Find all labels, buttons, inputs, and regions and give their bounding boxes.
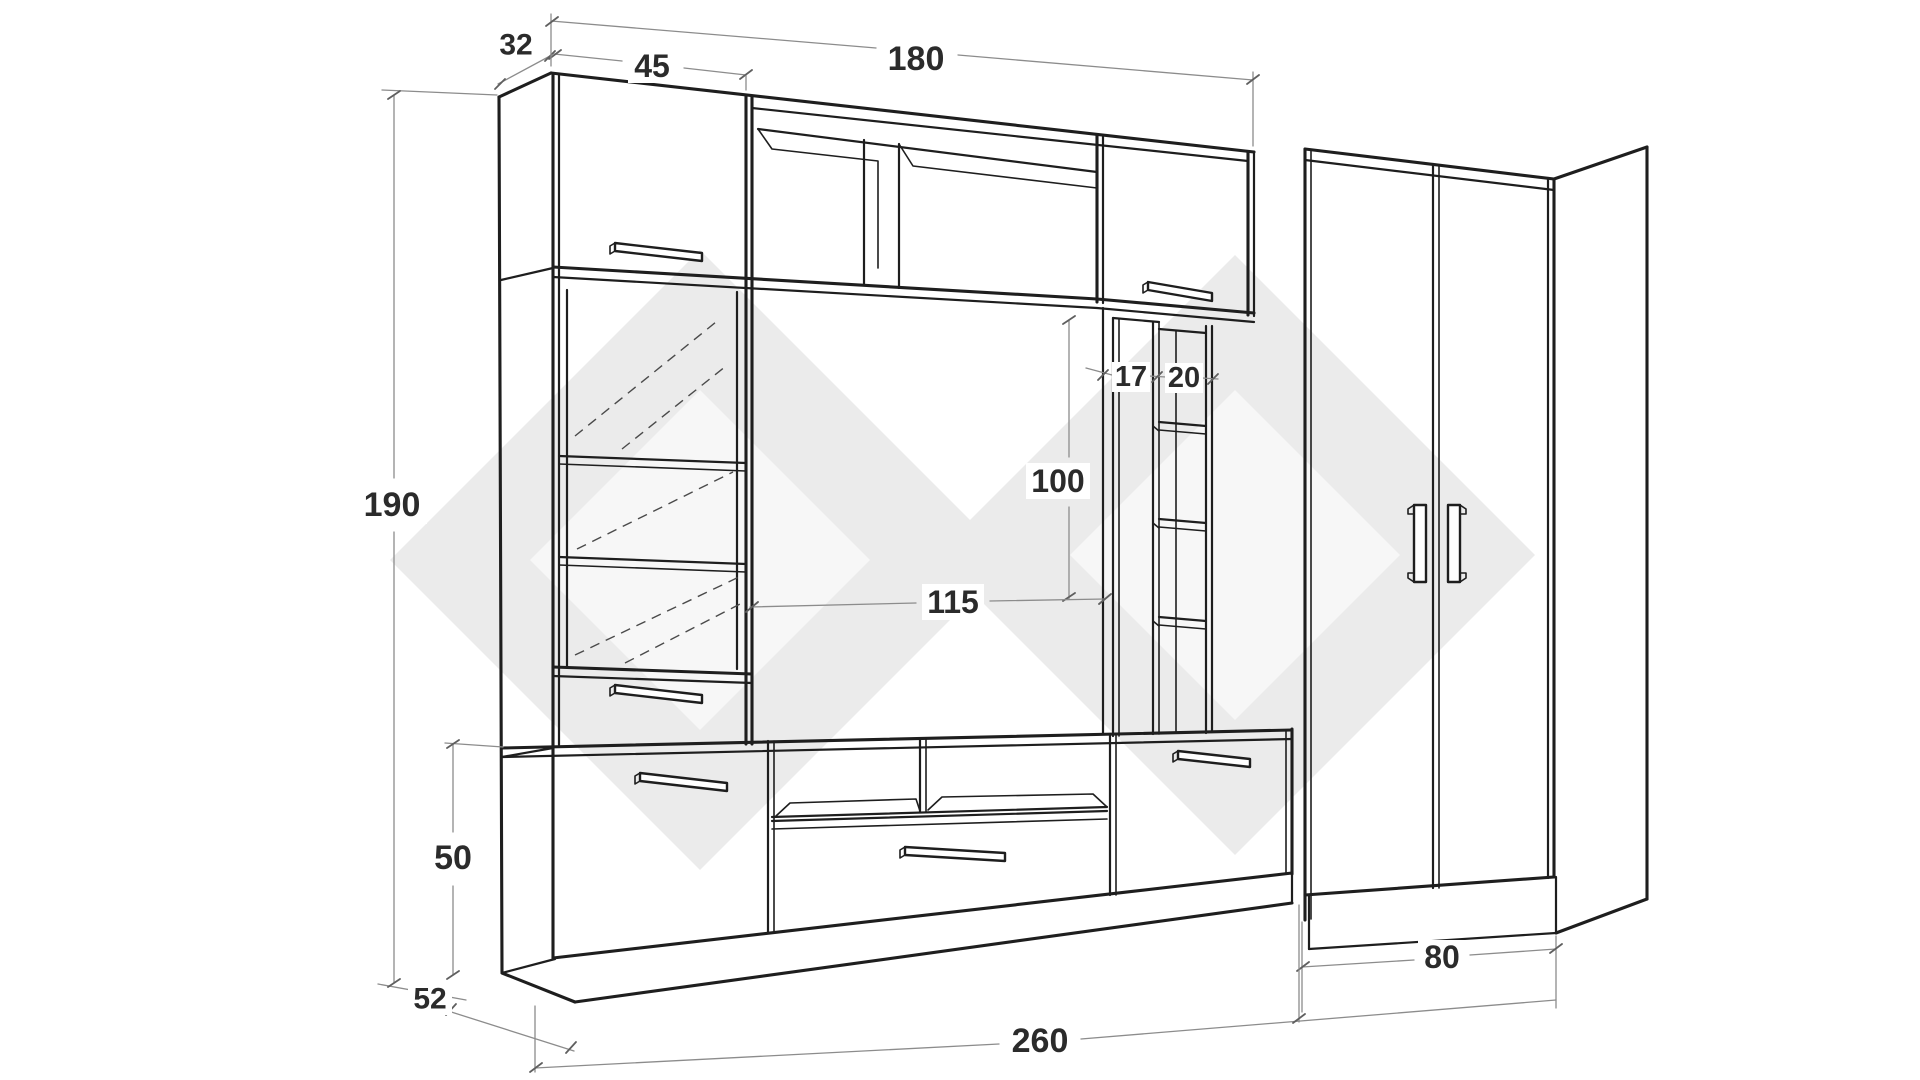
wardrobe-right-handle xyxy=(1448,505,1460,582)
dim-190: 190 xyxy=(364,486,421,524)
furniture-dimension-diagram: 32451801901001151720505226080 xyxy=(0,0,1920,1080)
top-left-cabinet-handle xyxy=(615,243,702,261)
dim-260: 260 xyxy=(1012,1022,1069,1060)
dim-45: 45 xyxy=(634,48,670,84)
dim-52: 52 xyxy=(413,983,446,1016)
watermark-diamonds xyxy=(390,250,1535,870)
dim-32: 32 xyxy=(499,29,532,62)
dim-180: 180 xyxy=(888,40,945,78)
dim-20: 20 xyxy=(1168,362,1200,394)
dim-80: 80 xyxy=(1424,939,1460,975)
dim-115: 115 xyxy=(927,584,979,620)
bench-drawer-handle xyxy=(905,847,1005,861)
dim-17: 17 xyxy=(1115,361,1147,393)
top-left-cabinet xyxy=(610,243,702,261)
dim-50: 50 xyxy=(434,839,472,877)
diagram-canvas: 32451801901001151720505226080 xyxy=(0,0,1920,1080)
wall-unit-top-edge xyxy=(551,73,1254,152)
dim-100: 100 xyxy=(1031,463,1084,499)
bridge-shelf xyxy=(752,108,1248,288)
top-right-cabinet-handle xyxy=(1148,282,1212,301)
wardrobe-left-handle xyxy=(1414,505,1426,582)
